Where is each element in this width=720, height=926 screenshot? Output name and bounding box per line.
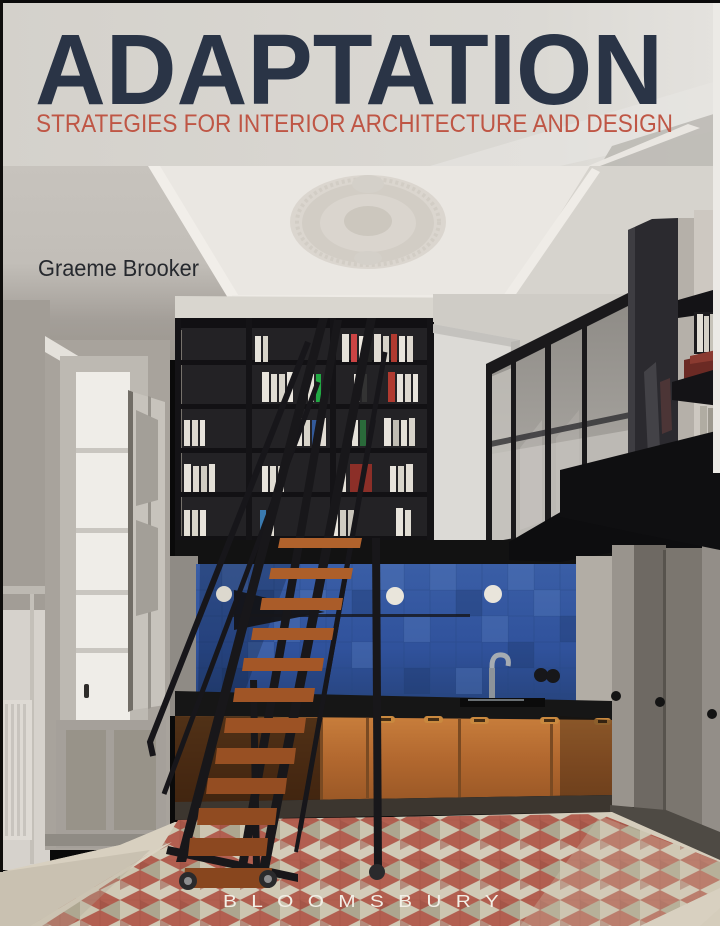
svg-text:BLOOMSBURY: BLOOMSBURY [223, 891, 513, 911]
svg-text:STRATEGIES FOR INTERIOR ARCHIT: STRATEGIES FOR INTERIOR ARCHITECTURE AND… [36, 110, 673, 138]
svg-text:Graeme Brooker: Graeme Brooker [38, 255, 199, 281]
